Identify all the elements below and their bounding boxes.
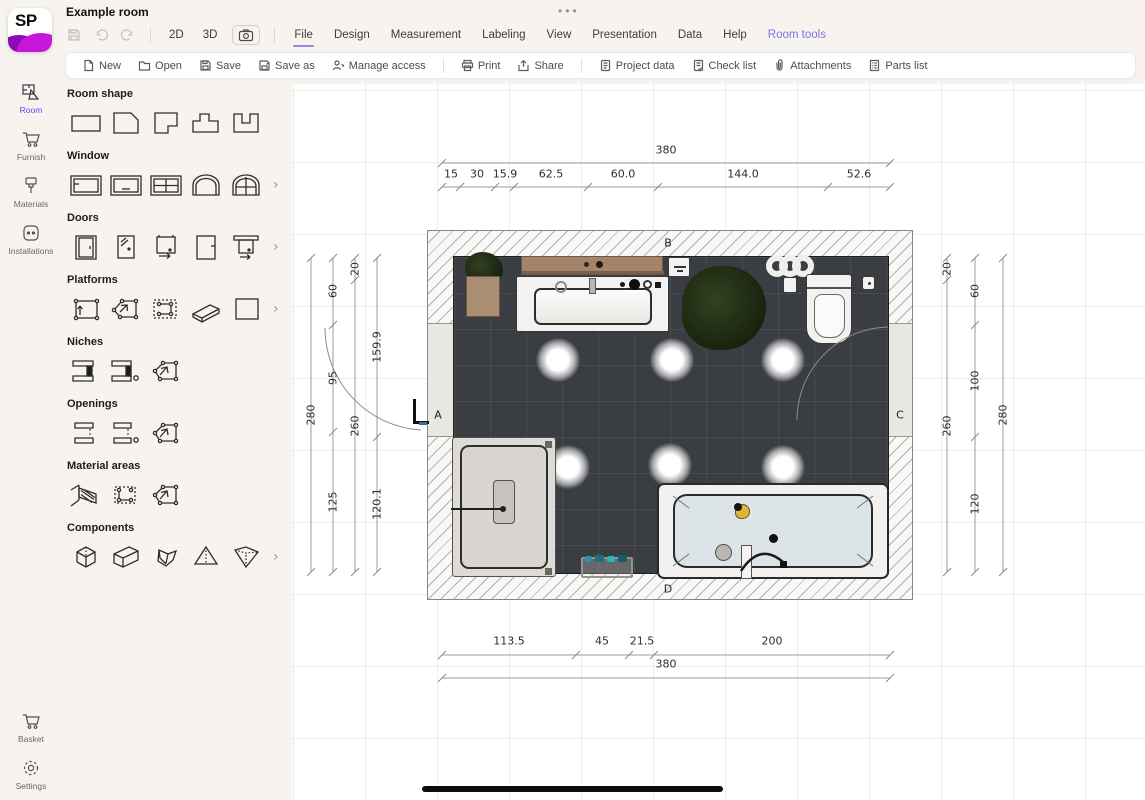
sidebar-item-furnish[interactable]: Furnish [0, 121, 62, 168]
cart-icon [20, 128, 42, 150]
door-plain-icon[interactable] [187, 232, 225, 262]
view-2d-button[interactable]: 2D [165, 27, 188, 43]
share-button[interactable]: Share [517, 59, 563, 72]
bench[interactable] [581, 557, 633, 578]
dim-top-total: 380 [656, 144, 677, 157]
window-more-chevron-icon[interactable]: › [273, 177, 279, 193]
dim: 15.9 [493, 168, 518, 181]
parts-list-button[interactable]: Parts list [868, 59, 927, 72]
section-openings: Openings [67, 398, 292, 448]
platform-square-icon[interactable] [227, 294, 265, 324]
paintbrush-icon [20, 175, 42, 197]
outlet-icon [20, 222, 42, 244]
divider [443, 58, 444, 73]
page-title: Example room [66, 5, 149, 19]
platforms-more-chevron-icon[interactable]: › [273, 301, 279, 317]
check-list-button[interactable]: Check list [692, 59, 757, 72]
divider [581, 58, 582, 73]
new-button[interactable]: New [82, 59, 121, 72]
material-poly-icon[interactable] [147, 480, 185, 510]
rubber-duck [735, 504, 750, 519]
dim: 15 [444, 168, 458, 181]
gear-icon [20, 757, 42, 779]
dim-bottom-total: 380 [656, 658, 677, 671]
ceiling-light [761, 338, 805, 382]
niche-wall-point-icon[interactable] [107, 356, 145, 386]
window-dots-icon[interactable]: ••• [558, 4, 580, 18]
opening-poly-icon[interactable] [147, 418, 185, 448]
tub-drain [769, 534, 778, 543]
wall-vent[interactable] [668, 257, 690, 277]
component-inverted-pyramid-icon[interactable] [227, 542, 265, 572]
sidebar-item-label: Installations [9, 246, 54, 256]
drain-ring [555, 281, 567, 293]
room-shape-u-icon[interactable] [227, 108, 265, 138]
tab-presentation[interactable]: Presentation [587, 27, 662, 43]
dim: 60 [327, 284, 340, 298]
object-panel: Room shape Window › Doors [62, 84, 292, 800]
open-button[interactable]: Open [138, 59, 182, 72]
undo-icon[interactable] [93, 27, 109, 43]
tab-measurement[interactable]: Measurement [386, 27, 466, 43]
washbasin-vanity[interactable] [516, 276, 669, 332]
wall-label-d: D [664, 583, 672, 596]
sidebar-item-room[interactable]: Room [0, 74, 62, 121]
window-cross-icon[interactable] [147, 170, 185, 200]
wall-label-c: C [896, 409, 904, 422]
dim: 60.0 [611, 168, 636, 181]
sidebar-item-label: Room [20, 105, 43, 115]
section-window: Window › [67, 150, 292, 200]
view-3d-button[interactable]: 3D [199, 27, 222, 43]
file-toolbar: New Open Save Save as Manage access Prin… [65, 52, 1136, 79]
tab-design[interactable]: Design [329, 27, 375, 43]
door-frame-icon[interactable] [67, 232, 105, 262]
attachments-button[interactable]: Attachments [773, 59, 851, 72]
wall-label-b: B [664, 237, 672, 250]
ceiling-light [536, 338, 580, 382]
section-scale-bar [422, 786, 723, 792]
sidebar-item-label: Materials [14, 199, 48, 209]
material-wall-icon[interactable] [67, 480, 105, 510]
basket-icon [20, 710, 42, 732]
dim: 200 [762, 635, 783, 648]
tab-file[interactable]: File [289, 27, 318, 43]
dim-left-total: 280 [305, 405, 318, 426]
platform-poly-icon[interactable] [107, 294, 145, 324]
divider [150, 27, 151, 43]
dim: 260 [349, 416, 362, 437]
ceiling-light [650, 338, 694, 382]
tab-view[interactable]: View [542, 27, 577, 43]
logo-text: SP [15, 11, 37, 31]
wall-box[interactable] [783, 277, 797, 293]
section-platforms: Platforms › [67, 274, 292, 324]
bathtub[interactable] [657, 483, 889, 579]
component-box-icon[interactable] [107, 542, 145, 572]
room-shape-cut-corner-icon[interactable] [107, 108, 145, 138]
wall-hook[interactable] [862, 276, 875, 290]
sidebar-item-label: Settings [16, 781, 47, 791]
tub-faucet-knob [715, 544, 732, 561]
save-as-button[interactable]: Save as [258, 59, 315, 72]
tab-labeling[interactable]: Labeling [477, 27, 530, 43]
room-shape-t-icon[interactable] [187, 108, 225, 138]
dim: 120 [969, 494, 982, 515]
dim: 113.5 [493, 635, 525, 648]
dim: 95 [327, 371, 340, 385]
components-more-chevron-icon[interactable]: › [273, 549, 279, 565]
opening-wall-icon[interactable] [67, 418, 105, 448]
section-components: Components › [67, 522, 292, 572]
tab-data[interactable]: Data [673, 27, 707, 43]
room-icon [20, 81, 42, 103]
wall-label-a: A [434, 409, 442, 422]
door-glass-icon[interactable] [107, 232, 145, 262]
door-rail-icon[interactable] [227, 232, 265, 262]
dim: 52.6 [847, 168, 872, 181]
section-niches: Niches [67, 336, 292, 386]
dim: 20 [349, 262, 362, 276]
tab-room-tools[interactable]: Room tools [763, 27, 831, 43]
material-rect-icon[interactable] [107, 480, 145, 510]
component-cube-icon[interactable] [67, 542, 105, 572]
ceiling-light [648, 443, 692, 487]
dim: 100 [969, 371, 982, 392]
canvas[interactable]: 380 15 30 15.9 62.5 60.0 144.0 52.6 113.… [292, 84, 1145, 800]
section-doors: Doors › [67, 212, 292, 262]
faucet [589, 278, 596, 294]
dim: 20 [941, 262, 954, 276]
door-swing-marker [413, 399, 429, 424]
platform-rect-icon[interactable] [67, 294, 105, 324]
dim: 30 [470, 168, 484, 181]
sidebar-item-installations[interactable]: Installations [0, 215, 62, 262]
redo-icon[interactable] [120, 27, 136, 43]
door-marker-accent [419, 422, 427, 425]
app-logo[interactable]: SP [8, 8, 52, 52]
app-window: SP Room Furnish Materials In [0, 0, 1145, 800]
dim: 21.5 [630, 635, 655, 648]
opening-wall-point-icon[interactable] [107, 418, 145, 448]
section-room-shape: Room shape [67, 88, 292, 138]
dim: 125 [327, 492, 340, 513]
component-pyramid-icon[interactable] [187, 542, 225, 572]
platform-slab-icon[interactable] [187, 294, 225, 324]
niche-wall-icon[interactable] [67, 356, 105, 386]
sidebar-item-label: Furnish [17, 152, 45, 162]
print-button[interactable]: Print [461, 59, 501, 72]
dim-right-total: 280 [997, 405, 1010, 426]
tab-help[interactable]: Help [718, 27, 752, 43]
menu-bar: 2D 3D File Design Measurement Labeling V… [66, 24, 831, 46]
divider [274, 27, 275, 43]
wood-shelf[interactable] [521, 256, 663, 275]
manage-access-button[interactable]: Manage access [332, 59, 426, 72]
screenshot-camera-button[interactable] [232, 25, 260, 45]
dim: 159.9 [371, 331, 384, 363]
dim: 60 [969, 284, 982, 298]
left-rail: SP Room Furnish Materials In [0, 0, 62, 800]
window-inner-icon[interactable] [107, 170, 145, 200]
dim: 45 [595, 635, 609, 648]
room-shape-l-icon[interactable] [147, 108, 185, 138]
project-data-button[interactable]: Project data [599, 59, 675, 72]
door-sliding-icon[interactable] [147, 232, 185, 262]
component-wedge-icon[interactable] [147, 542, 185, 572]
dim: 260 [941, 416, 954, 437]
sidebar-item-materials[interactable]: Materials [0, 168, 62, 215]
shower[interactable] [452, 437, 556, 577]
doors-more-chevron-icon[interactable]: › [273, 239, 279, 255]
save-icon[interactable] [66, 27, 82, 43]
room-shape-rectangle-icon[interactable] [67, 108, 105, 138]
save-button[interactable]: Save [199, 59, 241, 72]
window-arch-cross-icon[interactable] [227, 170, 265, 200]
window-basic-icon[interactable] [67, 170, 105, 200]
tub-faucet-pipe [741, 545, 752, 579]
window-arch-icon[interactable] [187, 170, 225, 200]
sidebar-item-label: Basket [18, 734, 44, 744]
toilet[interactable] [806, 274, 852, 344]
wood-cabinet[interactable] [466, 276, 500, 317]
dim: 120.1 [371, 488, 384, 520]
dim: 144.0 [727, 168, 759, 181]
platform-dashed-icon[interactable] [147, 294, 185, 324]
niche-poly-icon[interactable] [147, 356, 185, 386]
section-material-areas: Material areas [67, 460, 292, 510]
dim: 62.5 [539, 168, 564, 181]
sidebar-item-basket[interactable]: Basket [0, 703, 62, 750]
sidebar-item-settings[interactable]: Settings [0, 750, 62, 797]
